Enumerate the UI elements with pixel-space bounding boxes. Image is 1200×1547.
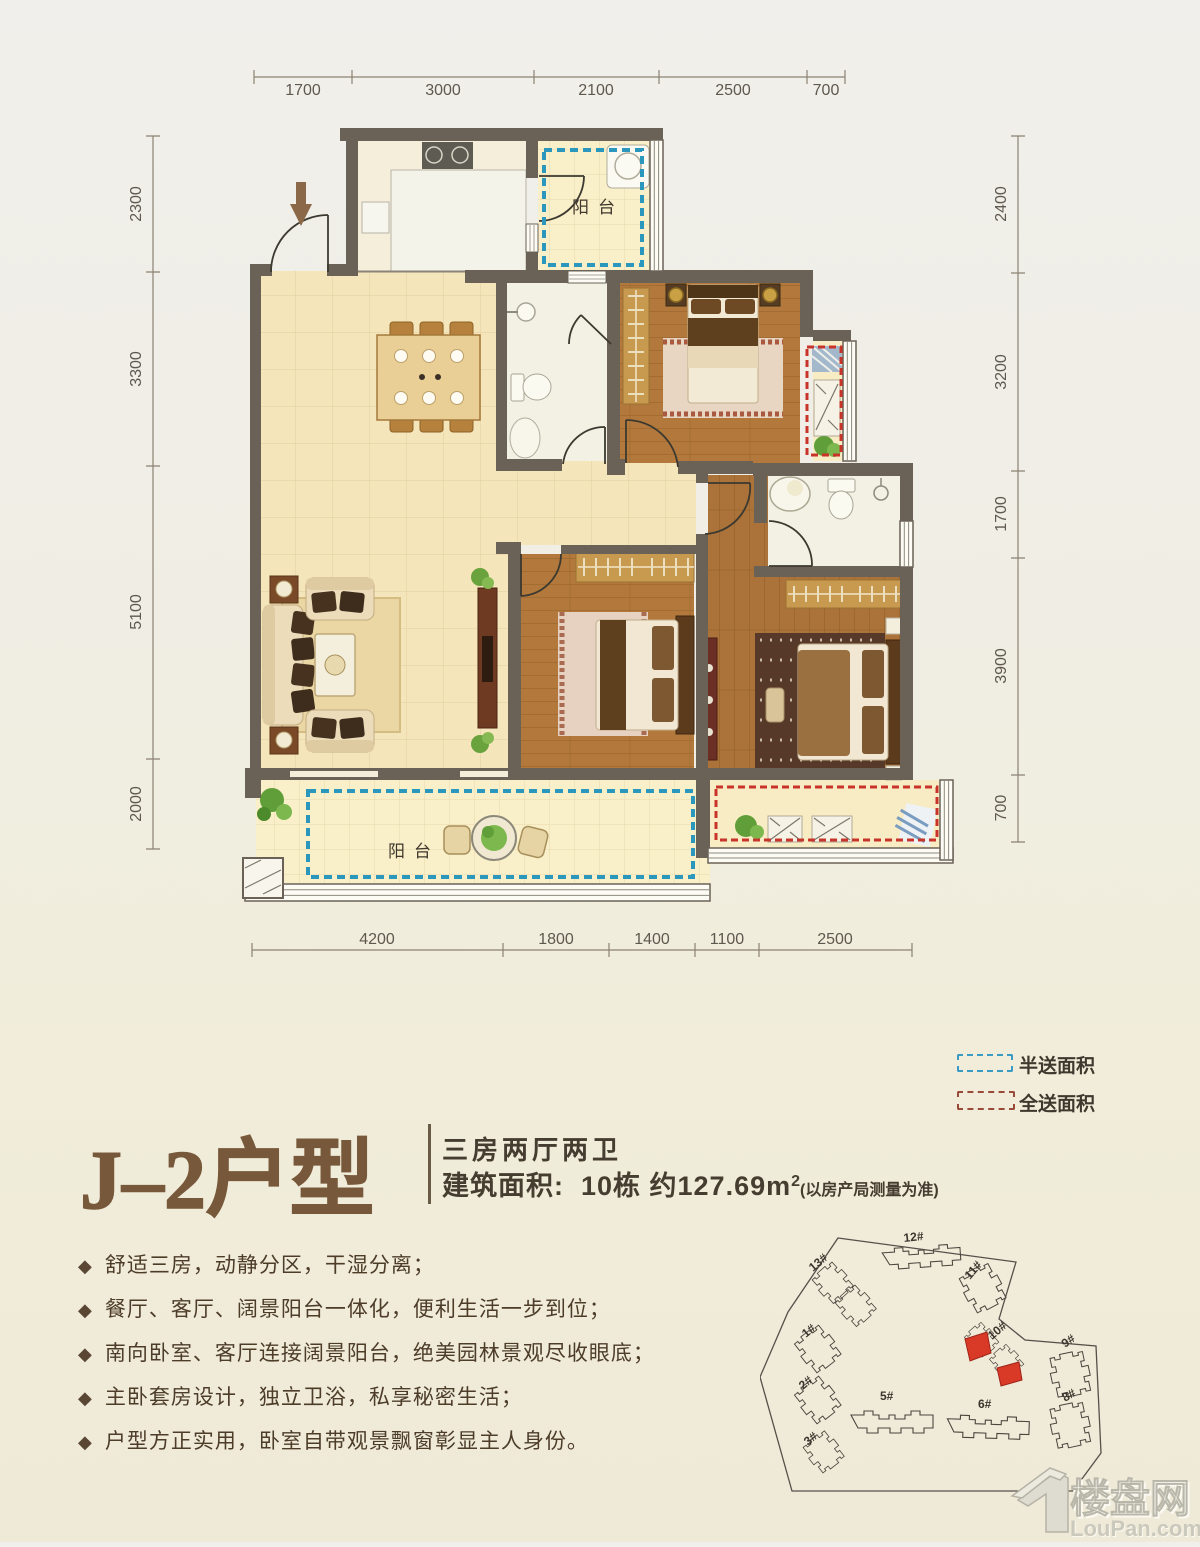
svg-text:2100: 2100 [578, 82, 614, 99]
svg-text:3#: 3# [801, 1429, 820, 1449]
svg-text:2300: 2300 [128, 186, 145, 222]
svg-text:8#: 8# [1060, 1386, 1079, 1405]
svg-text:5#: 5# [880, 1389, 894, 1403]
svg-text:2500: 2500 [817, 931, 853, 948]
svg-text:1800: 1800 [538, 931, 574, 948]
svg-text:楼盘网: 楼盘网 [1070, 1476, 1190, 1521]
svg-text:700: 700 [813, 82, 840, 99]
svg-text:9#: 9# [1059, 1331, 1078, 1350]
svg-text:3300: 3300 [128, 351, 145, 387]
svg-text:4200: 4200 [359, 931, 395, 948]
svg-text:2500: 2500 [715, 82, 751, 99]
svg-text:3200: 3200 [993, 354, 1010, 390]
svg-text:12#: 12# [903, 1229, 925, 1245]
svg-text:阳台: 阳台 [572, 198, 624, 217]
svg-text:2400: 2400 [993, 186, 1010, 222]
svg-text:1400: 1400 [634, 931, 670, 948]
svg-text:1100: 1100 [710, 931, 745, 948]
svg-text:700: 700 [993, 795, 1010, 822]
svg-text:3900: 3900 [993, 648, 1010, 684]
svg-text:5100: 5100 [128, 594, 145, 630]
svg-text:2000: 2000 [128, 786, 145, 822]
svg-text:6#: 6# [978, 1397, 992, 1411]
svg-text:2#: 2# [796, 1373, 815, 1393]
svg-text:1700: 1700 [993, 496, 1010, 532]
svg-text:阳台: 阳台 [388, 842, 440, 861]
svg-text:3000: 3000 [425, 82, 461, 99]
svg-text:1#: 1# [799, 1321, 818, 1341]
svg-text:1700: 1700 [285, 82, 321, 99]
svg-text:LouPan.com: LouPan.com [1070, 1516, 1200, 1541]
